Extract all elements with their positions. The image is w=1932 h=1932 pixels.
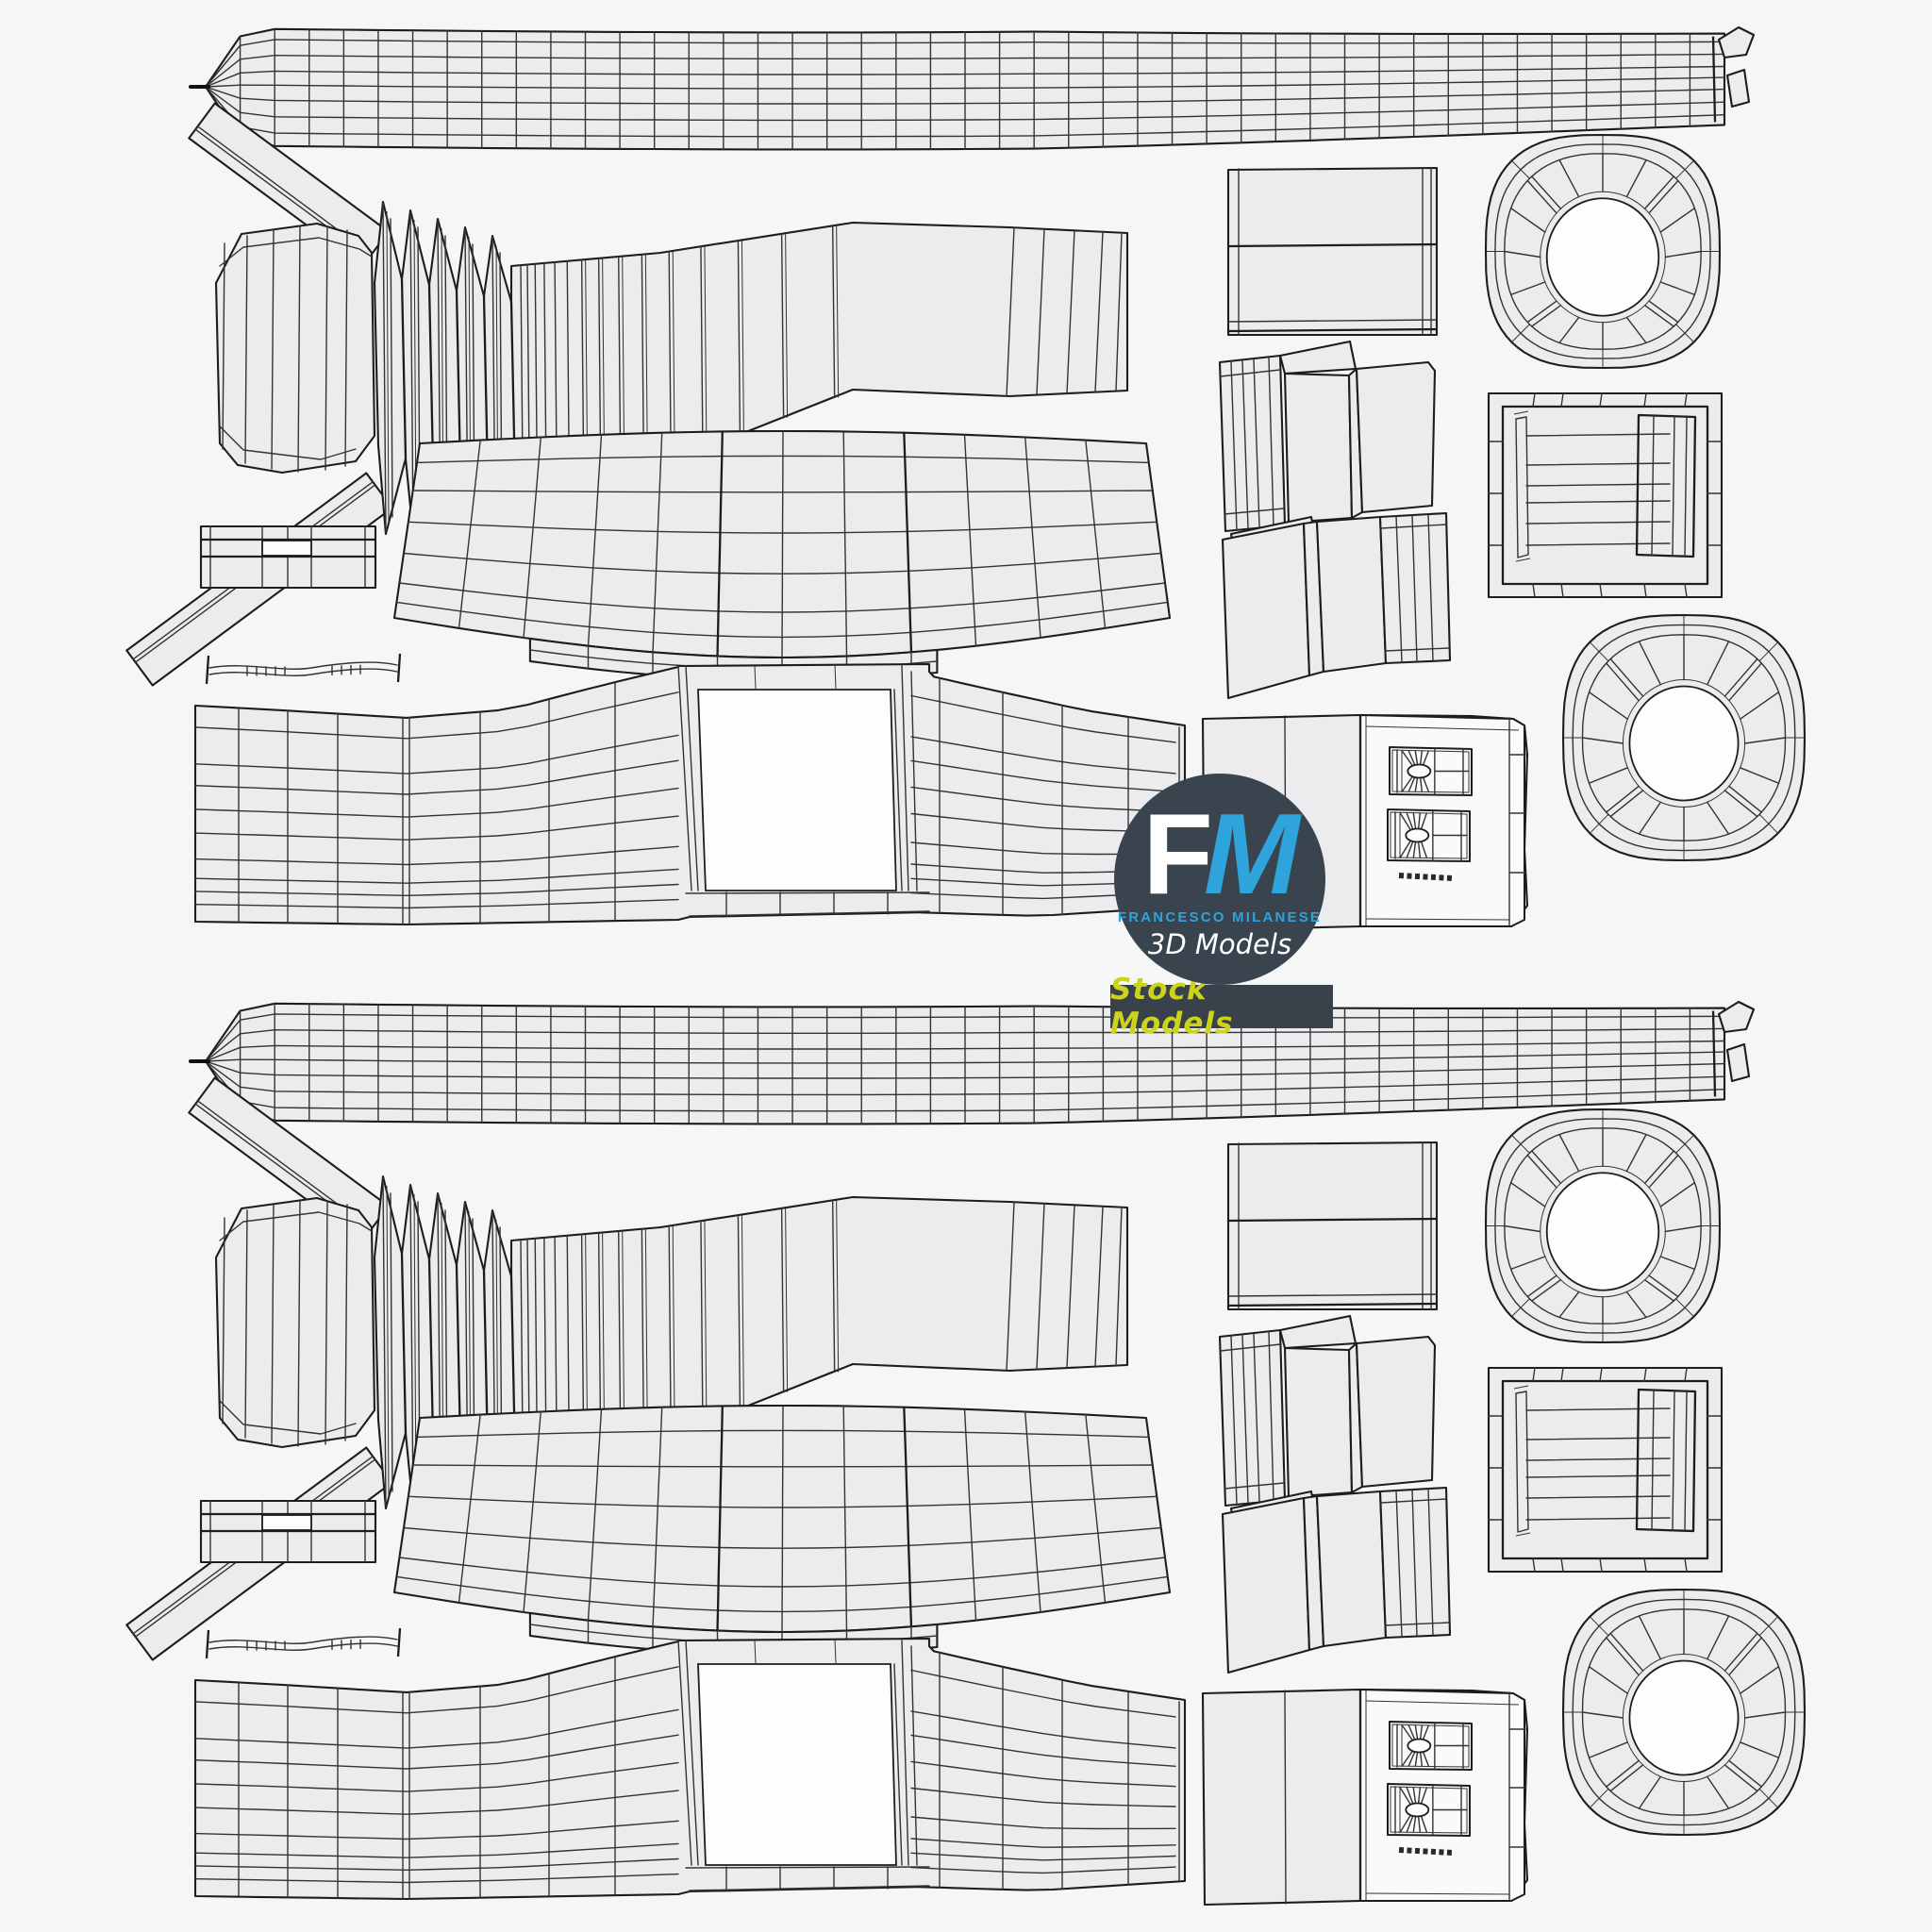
island-hull-tube-copy [191,1002,1754,1124]
island-hull-tube [191,27,1754,149]
brand-author-name: FRANCESCO MILANESE [1118,909,1322,925]
stock-models-badge: Stock Models [1110,985,1333,1028]
island-waist-band-copy [195,1639,1185,1899]
island-socket-cup-copy [216,1198,375,1447]
island-socket-cup [216,224,375,473]
island-canopy-grid [394,431,1170,680]
island-cushion-top [1486,135,1720,368]
monogram-letter-m: M [1204,804,1297,905]
island-plate [1228,168,1437,335]
island-axle-rod-copy [207,1628,400,1658]
island-fold-panel-a-copy [1220,1316,1435,1506]
island-vent-door-copy [1203,1690,1527,1905]
brand-tagline: 3D Models [1148,928,1291,960]
island-fold-panel-a [1220,341,1435,531]
island-plate-copy [1228,1142,1437,1309]
island-frame-panel-copy [1489,1368,1722,1572]
brand-monogram: F M [1142,804,1296,905]
island-fold-panel-b-copy [1223,1488,1450,1673]
island-cushion-top-copy [1486,1109,1720,1342]
wireframe-canvas [0,0,1932,1932]
island-small-grid [201,526,375,588]
island-small-grid-copy [201,1501,375,1562]
uv-template-sheet: F M FRANCESCO MILANESE 3D Models Stock M… [0,0,1932,1932]
island-axle-rod [207,654,400,684]
brand-logo-circle: F M FRANCESCO MILANESE 3D Models [1114,774,1325,985]
island-fold-panel-b [1223,513,1450,698]
island-cushion-bottom [1563,615,1805,860]
uv-sheet-half-bottom [126,1002,1805,1905]
monogram-letter-f: F [1142,804,1210,905]
uv-sheet-half-top [126,27,1805,930]
island-waist-band [195,664,1185,924]
island-frame-panel [1489,393,1722,597]
island-canopy-grid-copy [394,1406,1170,1655]
island-cushion-bottom-copy [1563,1590,1805,1835]
